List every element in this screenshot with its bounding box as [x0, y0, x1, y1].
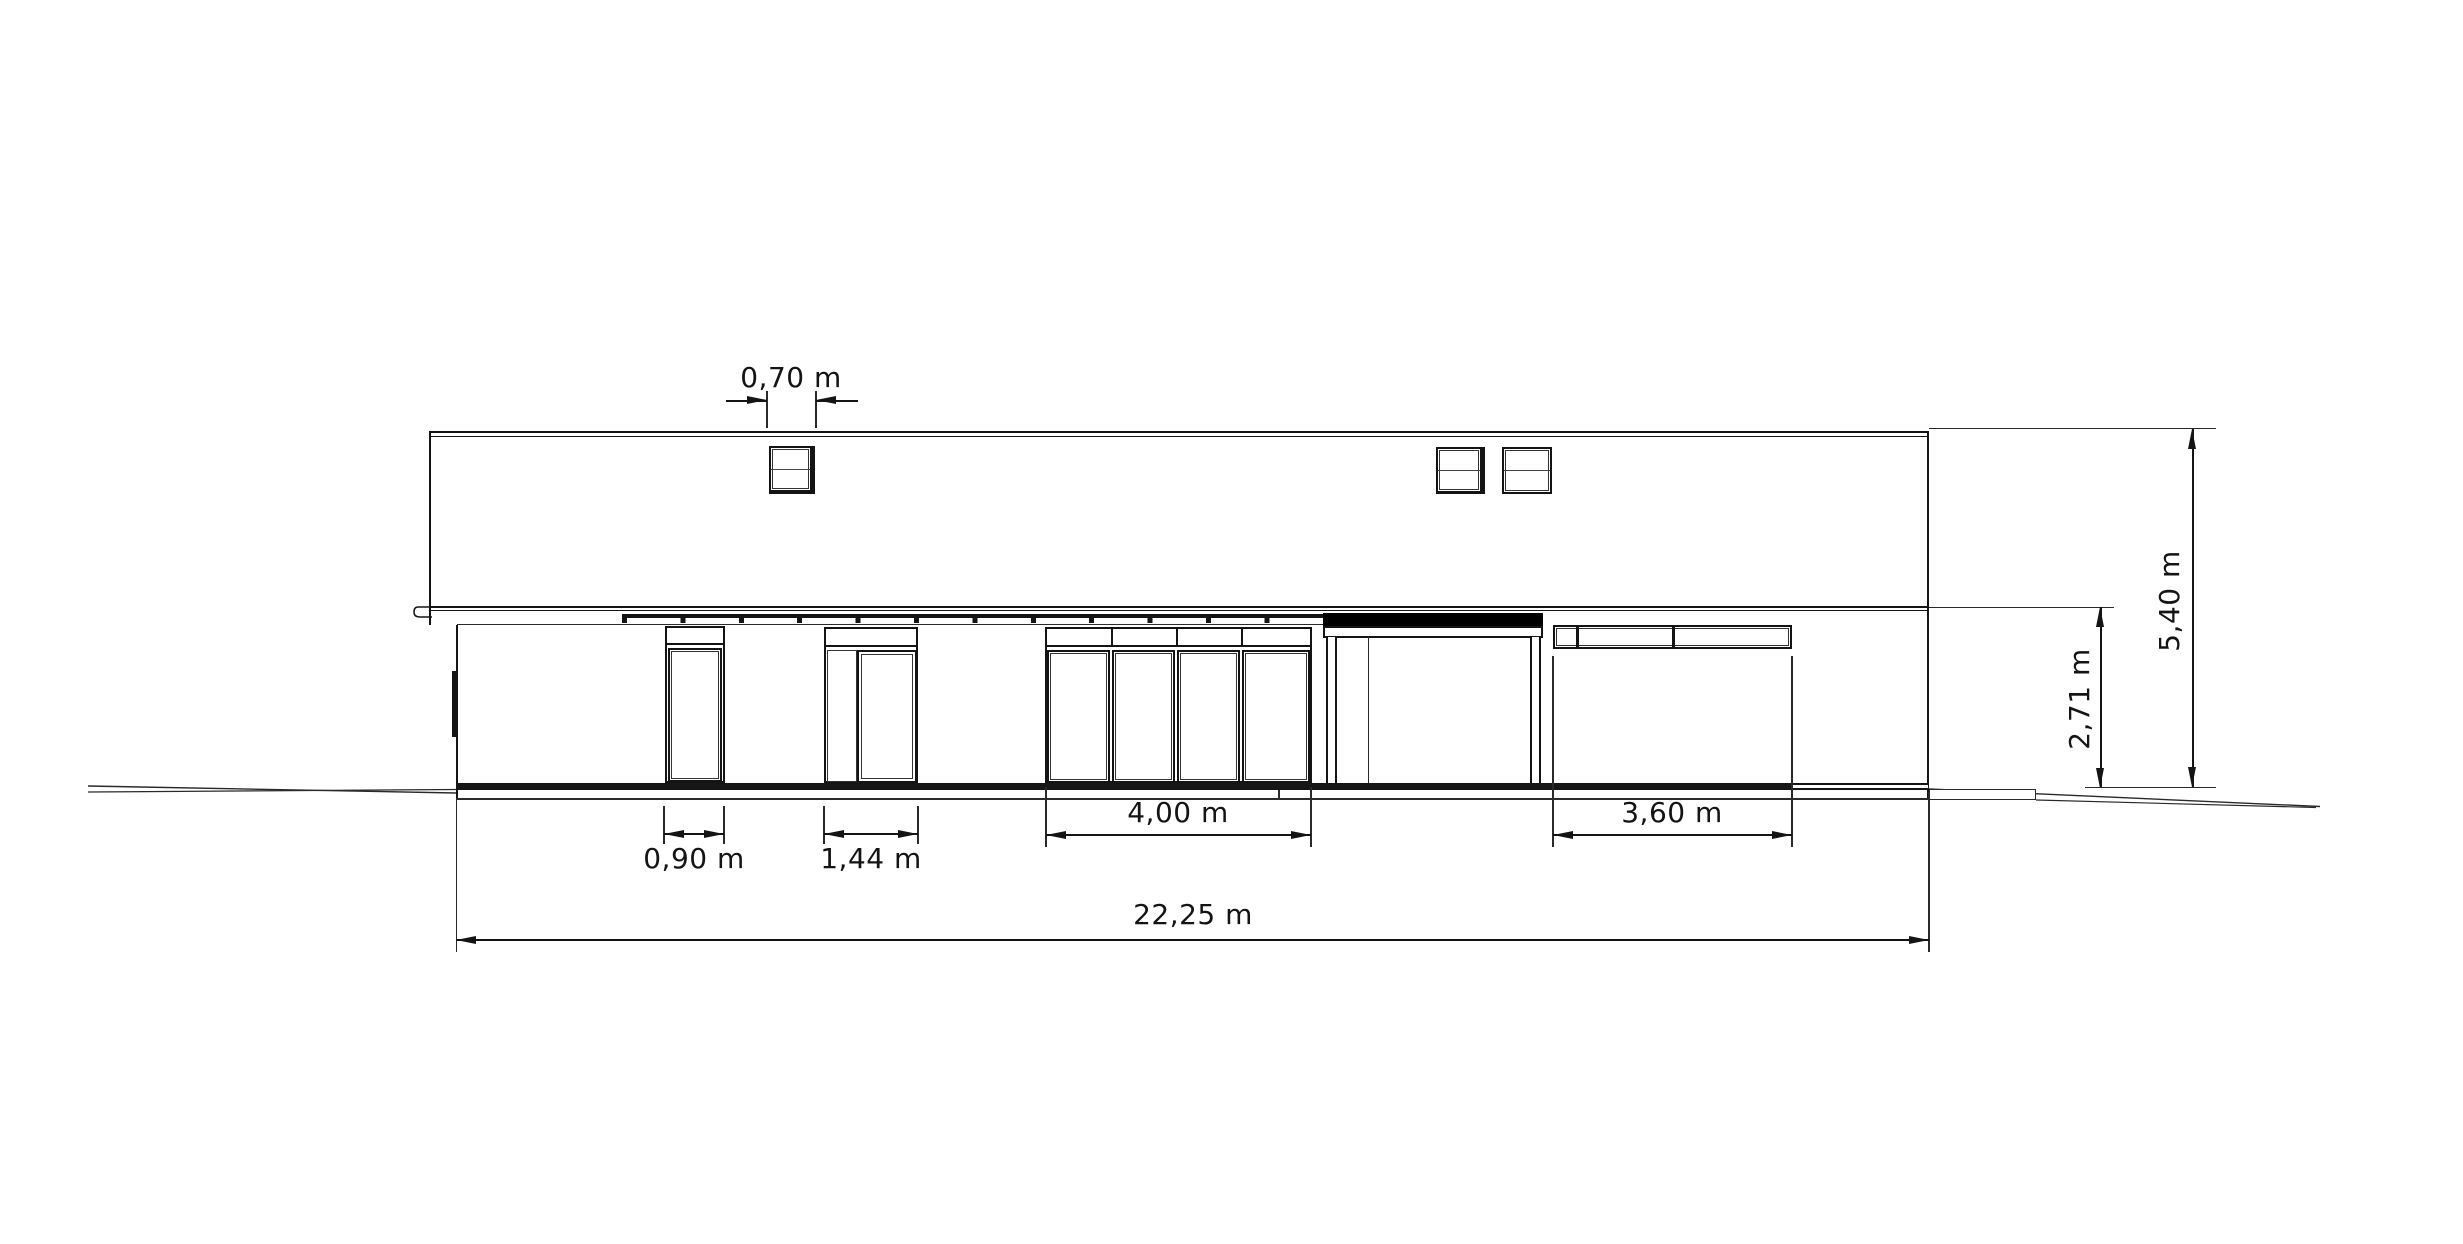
- dim-540-ext-bottom: [2085, 787, 2216, 788]
- dim-2225-ext-right: [1928, 792, 1930, 952]
- dim-271-arrow-down: [2096, 768, 2104, 788]
- roof-left-edge: [429, 608, 431, 625]
- carport-post-right: [1530, 637, 1541, 783]
- carport-fascia: [1323, 626, 1543, 638]
- dim-070-label: 0,70 m: [716, 363, 866, 393]
- dim-090-arrow-right: [704, 830, 724, 838]
- roof-window-right-1: [1436, 447, 1485, 494]
- large-window-panel-2-inner: [1115, 653, 1172, 780]
- roof-window-right-2: [1502, 447, 1552, 494]
- dim-360-arrow-left: [1553, 831, 1573, 839]
- carport-interior-corner-line: [1368, 637, 1369, 783]
- carport-post-left: [1326, 637, 1337, 783]
- dim-144-arrow-right: [898, 830, 918, 838]
- dim-090-ext-left: [663, 806, 665, 844]
- canopy-underside-line: [457, 624, 1323, 625]
- dim-090-ext-right: [723, 806, 725, 844]
- dim-2225-line: [456, 939, 1929, 941]
- roof-window-right-2-midrail: [1504, 470, 1550, 471]
- carport-roof-band: [1323, 613, 1543, 626]
- dim-540-line: [2192, 429, 2194, 787]
- ground-step-box-right: [1929, 789, 2036, 800]
- downspout: [452, 671, 457, 737]
- dim-090-label: 0,90 m: [619, 844, 769, 874]
- canopy-fixing-clips: [622, 618, 1272, 623]
- dim-090-arrow-left: [664, 830, 684, 838]
- plinth-band-outlined: [1793, 783, 1928, 790]
- dim-400-arrow-left: [1046, 831, 1066, 839]
- small-window-transom-rail: [667, 643, 723, 645]
- roof-window-left: [769, 446, 815, 494]
- dim-360-ext-left: [1552, 656, 1554, 847]
- entrance-door-transom-rail: [826, 645, 916, 647]
- roof-band: [429, 431, 1929, 608]
- entrance-door-leaf-inner: [861, 654, 913, 779]
- dim-2225-label: 22,25 m: [1115, 900, 1271, 930]
- large-window-transom-mullion-3: [1241, 629, 1243, 645]
- dim-2225-arrow-left: [456, 936, 476, 944]
- large-window-transom-mullion-1: [1111, 629, 1113, 645]
- plinth-step-line: [1278, 790, 1280, 799]
- dim-540-arrow-down: [2188, 767, 2196, 787]
- dim-144-label: 1,44 m: [796, 844, 946, 874]
- wall-right-edge: [1927, 431, 1929, 800]
- dim-144-ext-right: [917, 806, 919, 844]
- dim-360-ext-right: [1791, 656, 1793, 847]
- dim-144-ext-left: [823, 806, 825, 844]
- fascia-second-line: [429, 610, 1929, 611]
- dim-271-ext-top: [1929, 607, 2114, 608]
- dim-360-line: [1553, 834, 1792, 836]
- dim-540-ext-top: [1929, 428, 2216, 429]
- dim-271-label: 2,71 m: [2065, 625, 2095, 773]
- roof-top-second-line: [429, 436, 1929, 437]
- roof-window-left-midrail: [771, 469, 810, 470]
- dim-271-arrow-up: [2096, 607, 2104, 627]
- plinth-band: [456, 783, 1793, 790]
- entrance-door-sidelight: [827, 650, 857, 782]
- dim-271-line: [2100, 607, 2102, 788]
- large-window-panel-3-inner: [1180, 653, 1237, 780]
- large-window-panel-4-inner: [1245, 653, 1307, 780]
- dim-540-arrow-up: [2188, 429, 2196, 449]
- dim-400-label: 4,00 m: [1102, 798, 1254, 828]
- ribbon-window-mullion-2: [1672, 627, 1675, 647]
- dim-360-label: 3,60 m: [1596, 798, 1748, 828]
- dim-144-arrow-left: [824, 830, 844, 838]
- dim-400-arrow-right: [1291, 831, 1311, 839]
- large-window-transom-mullion-2: [1176, 629, 1178, 645]
- large-window-panel-1-inner: [1050, 653, 1107, 780]
- elevation-drawing-canvas: 0,70 m 0,90 m 1,44 m 4,00 m 3,60 m 22,25…: [0, 0, 2463, 1244]
- dim-070-arrow-left: [816, 396, 836, 404]
- dim-360-arrow-right: [1772, 831, 1792, 839]
- small-window-casement-inner: [671, 651, 719, 779]
- dim-070-arrow-right: [747, 396, 767, 404]
- ribbon-window-mullion-1: [1576, 627, 1579, 647]
- dim-540-label: 5,40 m: [2155, 527, 2185, 675]
- dim-2225-ext-left: [456, 800, 458, 952]
- dim-400-line: [1046, 834, 1311, 836]
- roof-window-right-1-midrail: [1438, 470, 1480, 471]
- large-window-transom-rail: [1047, 645, 1310, 647]
- dim-2225-arrow-right: [1909, 936, 1929, 944]
